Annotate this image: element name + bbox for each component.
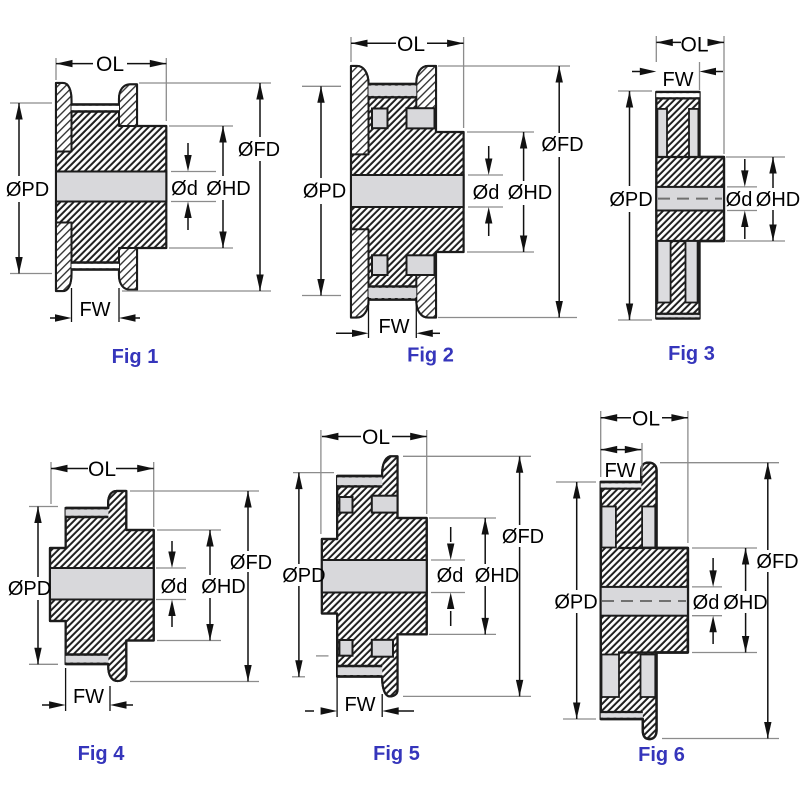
svg-text:Ød: Ød <box>693 592 720 614</box>
svg-text:ØHD: ØHD <box>206 178 250 200</box>
svg-text:ØPD: ØPD <box>282 565 325 587</box>
svg-text:ØFD: ØFD <box>502 526 544 548</box>
svg-text:ØFD: ØFD <box>541 134 583 156</box>
svg-text:FW: FW <box>378 316 409 338</box>
svg-text:ØHD: ØHD <box>201 576 245 598</box>
svg-text:Fig 3: Fig 3 <box>668 343 715 365</box>
svg-text:ØFD: ØFD <box>238 139 280 161</box>
svg-text:ØPD: ØPD <box>303 181 346 203</box>
svg-text:ØHD: ØHD <box>723 592 767 614</box>
svg-text:Ød: Ød <box>437 565 464 587</box>
svg-text:OL: OL <box>96 53 124 76</box>
svg-text:Fig 6: Fig 6 <box>638 744 685 766</box>
svg-text:OL: OL <box>632 407 660 430</box>
svg-text:OL: OL <box>397 33 425 56</box>
svg-text:FW: FW <box>344 694 375 716</box>
svg-text:ØPD: ØPD <box>6 179 49 201</box>
svg-text:FW: FW <box>73 686 104 708</box>
svg-text:Ød: Ød <box>726 189 753 211</box>
svg-text:ØHD: ØHD <box>756 189 800 211</box>
svg-text:Fig 5: Fig 5 <box>373 743 420 765</box>
svg-text:ØFD: ØFD <box>756 551 798 573</box>
svg-text:Fig 2: Fig 2 <box>407 345 454 367</box>
svg-text:Ød: Ød <box>171 178 198 200</box>
svg-text:ØPD: ØPD <box>554 592 597 614</box>
svg-text:Fig 4: Fig 4 <box>78 743 126 765</box>
svg-text:ØPD: ØPD <box>8 578 51 600</box>
svg-text:OL: OL <box>88 458 116 481</box>
svg-text:OL: OL <box>680 34 708 57</box>
svg-text:FW: FW <box>79 299 110 321</box>
svg-text:ØPD: ØPD <box>609 189 652 211</box>
svg-text:ØHD: ØHD <box>475 565 519 587</box>
svg-text:FW: FW <box>604 460 635 482</box>
svg-text:FW: FW <box>662 69 693 91</box>
svg-text:ØFD: ØFD <box>230 552 272 574</box>
svg-text:Ød: Ød <box>161 576 188 598</box>
svg-text:Ød: Ød <box>473 182 500 204</box>
svg-text:OL: OL <box>362 426 390 449</box>
svg-text:Fig 1: Fig 1 <box>112 346 159 368</box>
svg-text:ØHD: ØHD <box>508 182 552 204</box>
